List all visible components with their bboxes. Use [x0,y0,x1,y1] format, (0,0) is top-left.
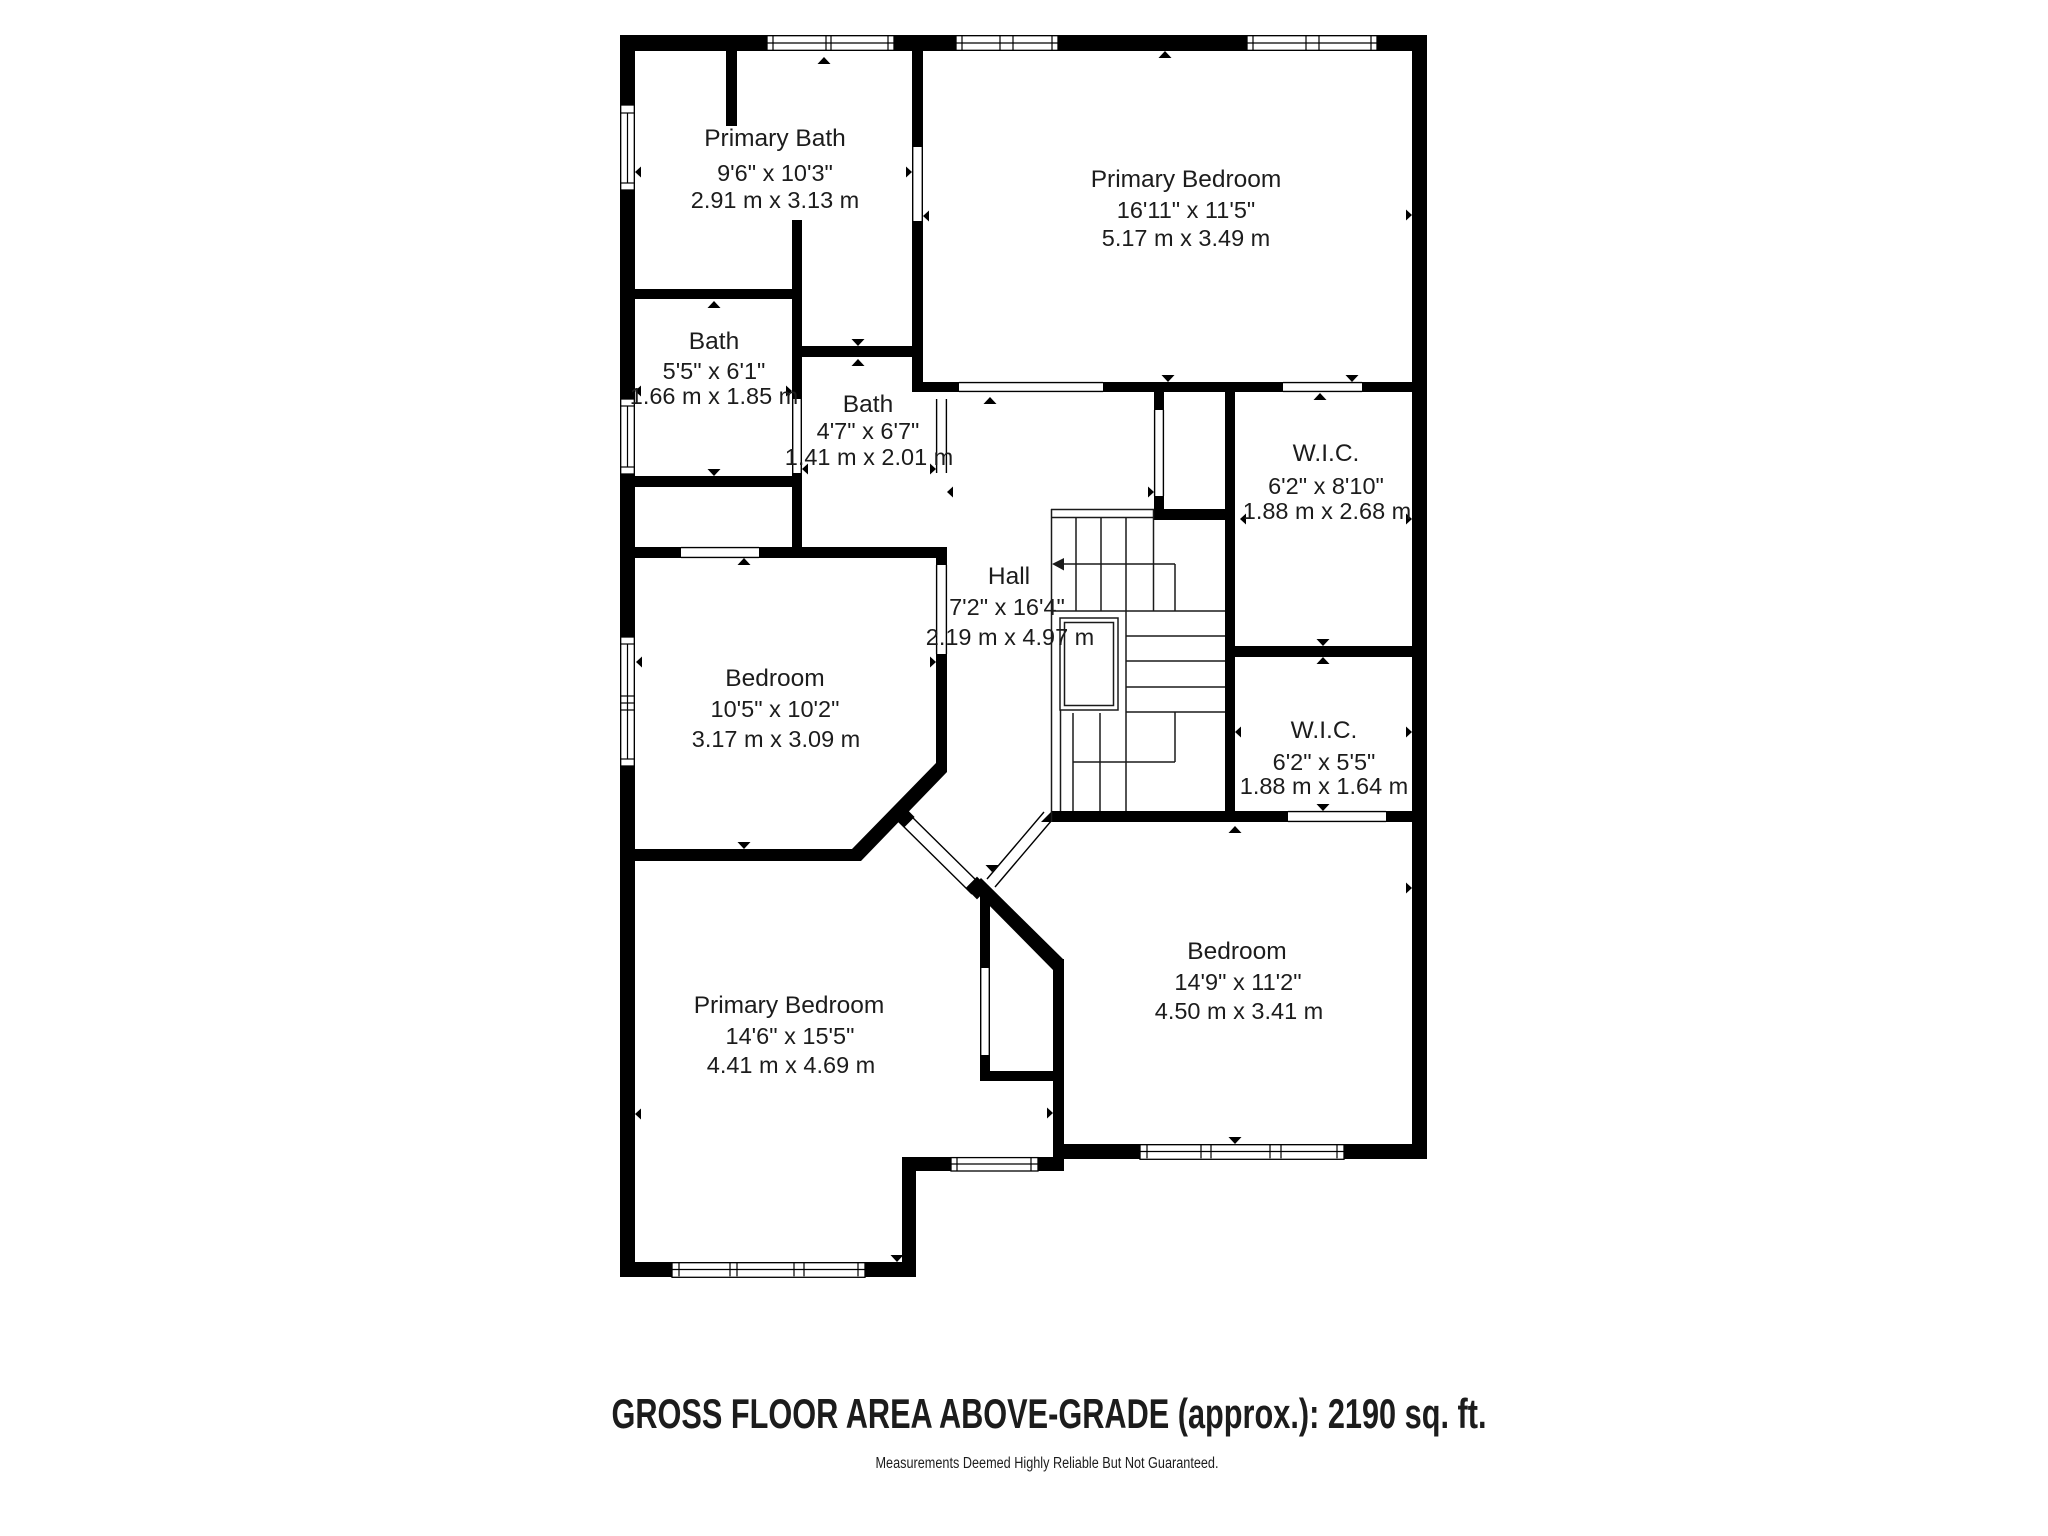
svg-text:W.I.C.: W.I.C. [1291,717,1358,744]
svg-text:4.41 m x 4.69 m: 4.41 m x 4.69 m [707,1052,876,1078]
svg-text:4'7" x 6'7": 4'7" x 6'7" [817,418,920,444]
svg-text:4.50 m x 3.41 m: 4.50 m x 3.41 m [1155,998,1324,1024]
svg-text:Bedroom: Bedroom [725,665,824,692]
svg-text:7'2" x 16'4": 7'2" x 16'4" [949,594,1065,620]
svg-text:W.I.C.: W.I.C. [1293,440,1360,467]
svg-text:5'5" x 6'1": 5'5" x 6'1" [663,358,766,384]
svg-text:Bath: Bath [843,391,893,418]
svg-text:9'6" x 10'3": 9'6" x 10'3" [717,160,833,186]
svg-text:6'2" x 5'5": 6'2" x 5'5" [1273,749,1376,775]
svg-text:16'11" x 11'5": 16'11" x 11'5" [1117,197,1255,223]
svg-text:Hall: Hall [988,563,1030,590]
svg-text:5.17 m x 3.49 m: 5.17 m x 3.49 m [1102,225,1271,251]
svg-text:GROSS FLOOR AREA ABOVE-GRADE (: GROSS FLOOR AREA ABOVE-GRADE (approx.): … [612,1390,1487,1437]
svg-text:1.66 m x 1.85 m: 1.66 m x 1.85 m [630,383,799,409]
svg-text:14'6" x 15'5": 14'6" x 15'5" [726,1023,855,1049]
svg-text:Primary Bath: Primary Bath [704,125,846,152]
svg-text:Primary Bedroom: Primary Bedroom [694,992,885,1019]
svg-text:Bath: Bath [689,328,739,355]
svg-text:Measurements Deemed Highly Rel: Measurements Deemed Highly Reliable But … [876,1455,1219,1472]
svg-text:2.91 m x 3.13 m: 2.91 m x 3.13 m [691,187,860,213]
svg-text:6'2" x 8'10": 6'2" x 8'10" [1268,473,1384,499]
svg-text:2.19 m x 4.97 m: 2.19 m x 4.97 m [926,624,1095,650]
svg-text:Bedroom: Bedroom [1187,938,1286,965]
svg-text:3.17 m x 3.09 m: 3.17 m x 3.09 m [692,726,861,752]
svg-text:1.88 m x 1.64 m: 1.88 m x 1.64 m [1240,773,1409,799]
svg-text:Primary Bedroom: Primary Bedroom [1091,166,1282,193]
svg-text:1.41 m x 2.01 m: 1.41 m x 2.01 m [785,444,954,470]
svg-text:14'9" x 11'2": 14'9" x 11'2" [1174,969,1301,995]
svg-text:10'5" x 10'2": 10'5" x 10'2" [711,696,840,722]
svg-text:1.88 m x 2.68 m: 1.88 m x 2.68 m [1243,498,1412,524]
